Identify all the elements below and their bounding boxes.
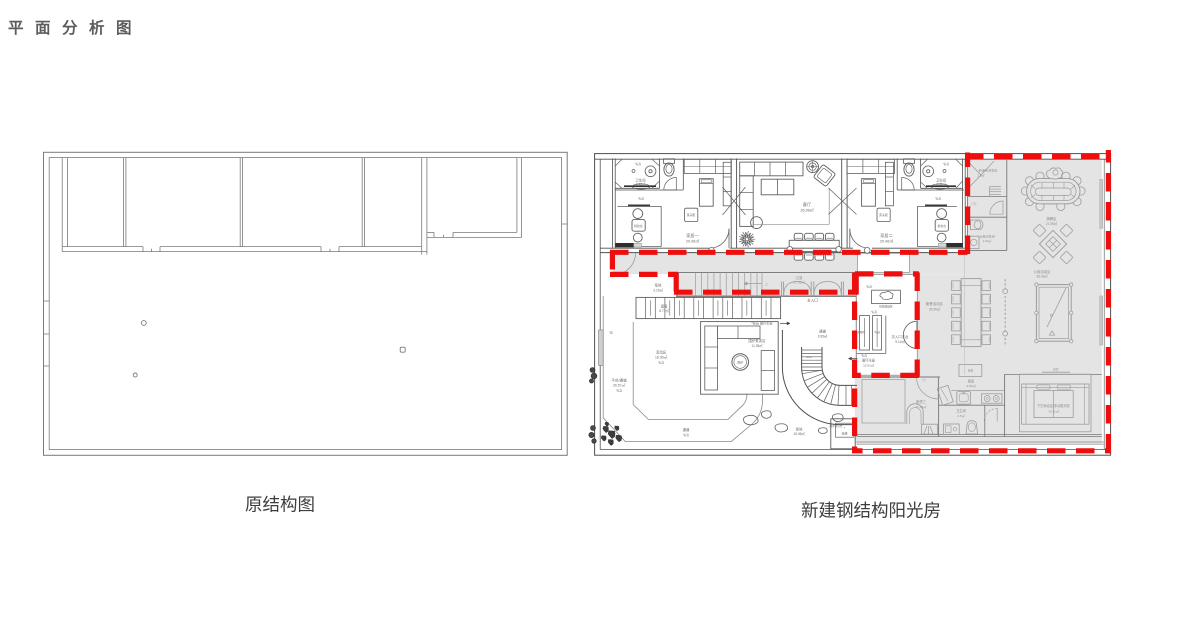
svg-text:*标高: *标高: [683, 433, 690, 437]
svg-text:围炉: 围炉: [737, 360, 743, 365]
svg-text:通道: 通道: [683, 427, 690, 432]
svg-text:家居二: 家居二: [880, 232, 893, 239]
svg-text:*标高: *标高: [638, 197, 645, 201]
svg-text:草地: 草地: [796, 426, 803, 431]
svg-text:35.96㎡: 35.96㎡: [800, 208, 814, 213]
svg-text:梳妆台: 梳妆台: [634, 224, 643, 228]
svg-text:8.77㎡: 8.77㎡: [659, 308, 669, 313]
svg-text:18.35㎡: 18.35㎡: [655, 355, 667, 360]
svg-text:4.02㎡: 4.02㎡: [983, 238, 992, 243]
svg-text:15.06㎡: 15.06㎡: [793, 431, 805, 436]
svg-text:衣帽柜: 衣帽柜: [857, 330, 865, 334]
svg-text:电梯: 电梯: [841, 430, 847, 435]
svg-text:21.59㎡: 21.59㎡: [1046, 221, 1058, 226]
svg-text:*标高 循环水景: *标高 循环水景: [751, 321, 772, 326]
svg-text:厨房: 厨房: [968, 378, 975, 383]
svg-text:4.83㎡: 4.83㎡: [966, 383, 976, 388]
svg-text:11.35㎡: 11.35㎡: [752, 343, 764, 348]
svg-text:卫生间: 卫生间: [956, 408, 966, 413]
svg-text:投影: 投影: [1053, 367, 1059, 371]
svg-text:次入口平台: 次入口平台: [892, 334, 910, 339]
svg-text:过道: 过道: [796, 275, 803, 280]
svg-text:26.57㎡: 26.57㎡: [613, 383, 625, 388]
svg-text:参观间/洗衣房: 参观间/洗衣房: [979, 168, 998, 173]
svg-text:4.46㎡: 4.46㎡: [936, 182, 946, 187]
svg-text:35.96㎡: 35.96㎡: [929, 306, 941, 311]
svg-text:20.96㎡: 20.96㎡: [880, 239, 894, 244]
svg-text:*标高: *标高: [874, 330, 880, 334]
svg-text:9.95㎡: 9.95㎡: [818, 333, 828, 338]
svg-text:3.16㎡: 3.16㎡: [653, 287, 663, 292]
svg-text:公用卫生间: 公用卫生间: [979, 234, 994, 239]
svg-text:*标高: *标高: [635, 162, 642, 166]
svg-text:*标高: *标高: [861, 353, 868, 357]
svg-text:*标高: *标高: [866, 284, 873, 288]
svg-text:通道: 通道: [819, 329, 826, 334]
svg-text:*标高: *标高: [616, 388, 623, 392]
svg-text:*标高: *标高: [658, 360, 665, 364]
svg-text:梳妆台: 梳妆台: [938, 224, 947, 228]
svg-text:公用活动区: 公用活动区: [1034, 269, 1052, 274]
svg-text:鞋柜收纳区: 鞋柜收纳区: [879, 305, 893, 309]
svg-text:客厅: 客厅: [803, 201, 811, 208]
svg-text:*标高: *标高: [943, 162, 950, 166]
svg-text:备餐: 备餐: [968, 369, 974, 373]
svg-text:卫生间: 卫生间: [936, 177, 947, 182]
svg-text:*窗: *窗: [609, 331, 613, 335]
svg-text:2.6㎡: 2.6㎡: [978, 172, 985, 177]
svg-text:床头柜: 床头柜: [879, 213, 888, 217]
svg-text:*标高: *标高: [871, 310, 878, 314]
svg-text:4.5㎡: 4.5㎡: [957, 413, 964, 418]
svg-text:踏步休息台: 踏步休息台: [830, 424, 843, 428]
svg-text:14.11㎡: 14.11㎡: [1048, 409, 1060, 414]
svg-text:活动区: 活动区: [656, 349, 667, 354]
svg-text:13.51㎡: 13.51㎡: [863, 362, 875, 367]
svg-text:21.59㎡: 21.59㎡: [793, 279, 805, 284]
svg-text:循环水景: 循环水景: [862, 358, 876, 363]
svg-text:*门: *门: [922, 379, 926, 383]
svg-text:原结构图: 原结构图: [245, 495, 315, 515]
svg-text:围炉煮茶区: 围炉煮茶区: [749, 338, 767, 343]
svg-text:上: 上: [765, 281, 768, 286]
svg-text:聚餐活动区: 聚餐活动区: [926, 301, 944, 306]
svg-text:20.96㎡: 20.96㎡: [686, 239, 700, 244]
svg-text:草地: 草地: [655, 283, 662, 288]
svg-text:下沉休息区/多功能可变: 下沉休息区/多功能可变: [1037, 403, 1071, 408]
svg-text:主入口: 主入口: [807, 298, 818, 303]
svg-text:平 面 分 析 图: 平 面 分 析 图: [8, 18, 135, 37]
svg-text:9.14㎡: 9.14㎡: [895, 339, 905, 344]
svg-text:38.42㎡: 38.42㎡: [1036, 274, 1048, 279]
svg-text:家居一: 家居一: [686, 232, 699, 239]
svg-text:门厅: 门厅: [972, 202, 978, 206]
svg-text:卫生间: 卫生间: [635, 177, 646, 182]
svg-text:平台/通道: 平台/通道: [611, 377, 627, 382]
svg-text:床头柜: 床头柜: [687, 213, 696, 217]
svg-text:棋牌区: 棋牌区: [1046, 216, 1057, 221]
svg-text:酒窖: 酒窖: [661, 303, 668, 308]
svg-text:*标高: *标高: [935, 197, 942, 201]
svg-text:家居三: 家居三: [916, 399, 927, 404]
svg-text:新建钢结构阳光房: 新建钢结构阳光房: [801, 501, 941, 521]
svg-text:4.46㎡: 4.46㎡: [636, 182, 646, 187]
